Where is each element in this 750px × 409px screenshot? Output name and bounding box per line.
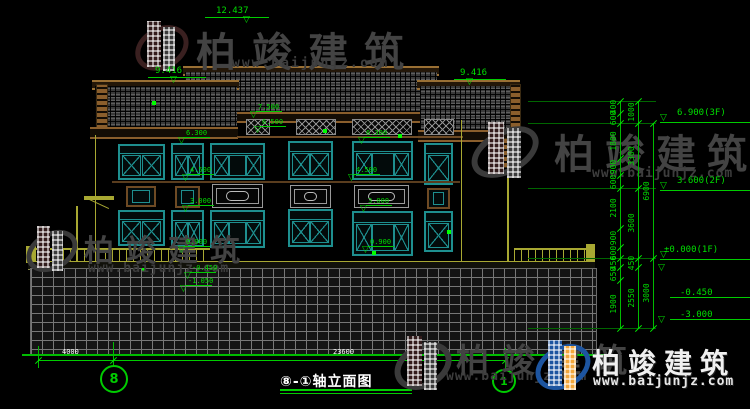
marker-line [364,137,390,138]
marker-line [366,205,392,206]
watermark-url: www.baijunjz.com [232,56,389,71]
level-marker-triangle: ▽ [178,246,185,255]
dim-value: 900 [609,159,618,173]
level-flag-line [670,297,750,298]
level-marker-triangle: ▽ [358,137,365,146]
dim-value: 3000 [642,283,651,302]
dim-value: 900 [609,230,618,244]
facade-level-marker: 0.900 [370,238,391,246]
dim-text-4000: 4000 [62,348,79,356]
spandrel-ornament-panel [212,184,263,208]
level-marker-triangle: ▽ [178,137,185,146]
marker-line [260,126,286,127]
level-marker-triangle: ▽ [360,205,367,214]
dim-value: 6900 [642,181,651,200]
window-1f [288,209,333,247]
level-flag-line [660,190,750,191]
level-flag-text: 6.900(3F) [677,108,726,118]
extension-line [38,346,39,368]
dim-chain-inner [620,101,621,328]
lattice-panel [296,119,336,135]
level-marker-triangle: ▽ [243,16,250,25]
lattice-panel [424,119,454,135]
window-2f [210,143,265,180]
facade-level-marker: -0.450 [192,264,217,272]
dim-value: 450 [627,255,636,269]
dim-value: 1900 [609,294,618,313]
left-roof [95,86,237,127]
window-2f [118,144,165,180]
level-marker-triangle: ▽ [182,205,189,214]
level-flag-text: ±0.000(1F) [664,245,718,255]
grip-point [398,134,402,138]
spandrel-ornament-panel [290,185,331,208]
dim-value: 2100 [609,198,618,217]
grip-point [323,129,327,133]
window-2f [424,143,453,185]
level-marker-triangle: ▽ [658,316,665,325]
marker-line [188,174,214,175]
marker-line [354,174,380,175]
level-marker-triangle: ▽ [466,78,473,87]
marker-line [184,137,210,138]
level-marker-triangle: ▽ [658,264,665,273]
marker-line [190,272,216,273]
marker-line [205,17,269,18]
grip-point [152,101,156,105]
facade-level-marker: 4.500 [356,166,377,174]
dim-value: 3600 [627,213,636,232]
dim-value: 600 [609,111,618,125]
facade-level-marker: 3.000 [190,197,211,205]
dim-value: 2550 [627,288,636,307]
facade-level-marker: -1.050 [188,277,213,285]
grip-point [372,251,376,255]
level-marker-triangle: ▽ [362,246,369,255]
window-2f [288,141,333,180]
level-marker-triangle: ▽ [182,174,189,183]
marker-line [148,77,206,78]
left-roof-eave [90,127,238,139]
facade-level-marker: 3.000 [368,197,389,205]
marker-line [184,246,210,247]
watermark-logo [24,221,80,281]
level-flag-line [670,319,750,320]
marker-line [368,246,394,247]
dim-value: 1800 [609,131,618,150]
level-flag-text: 3.600(2F) [677,176,726,186]
dim-value: 1000 [627,102,636,121]
marker-line [186,285,212,286]
dim-value: 3300 [627,146,636,165]
facade-level-marker: 4.500 [190,166,211,174]
level-marker-triangle: ▽ [254,126,261,135]
level-flag-line [660,259,750,260]
facade-level-marker: 6.300 [366,129,387,137]
cad-elevation-canvas: 4000 23600 8 1 ⑧-①轴立面图 柏竣建筑 www.baijunjz… [0,0,750,409]
level-marker-triangle: ▽ [250,111,257,120]
top-level-marker: 9.416 [460,68,487,78]
dim-value: 600 [609,174,618,188]
watermark-logo [392,332,454,400]
dim-text-23600: 23600 [333,348,354,356]
level-marker-triangle: ▽ [348,174,355,183]
dim-value: 650 [609,266,618,280]
brand-logo-color [534,336,592,398]
window-mid-small [427,188,450,209]
marker-line [256,111,282,112]
level-flag-line [660,122,750,123]
window-mid-small [126,186,156,207]
lattice-sill [237,136,463,138]
marker-line [188,205,214,206]
facade-level-marker: 6.300 [186,129,207,137]
facade-level-marker: 7.500 [258,103,279,111]
left-roof-gable-trim [96,84,108,130]
level-marker-triangle: ▽ [170,76,177,85]
facade-level-marker: 6.500 [262,118,283,126]
top-level-marker: 9.416 [155,66,182,76]
sill-band-2f [112,181,460,183]
watermark-logo [462,118,548,186]
dim-chain-middle [638,101,639,328]
marker-line [454,79,506,80]
level-marker-triangle: ▽ [180,285,187,294]
brand-url-color: www.baijunjz.com [593,374,734,389]
dim-chain-outer [653,123,654,328]
drawing-title: ⑧-①轴立面图 [280,371,373,391]
axis-bubble-8: 8 [100,365,128,393]
facade-level-marker: 0.900 [186,238,207,246]
grip-point [447,230,451,234]
